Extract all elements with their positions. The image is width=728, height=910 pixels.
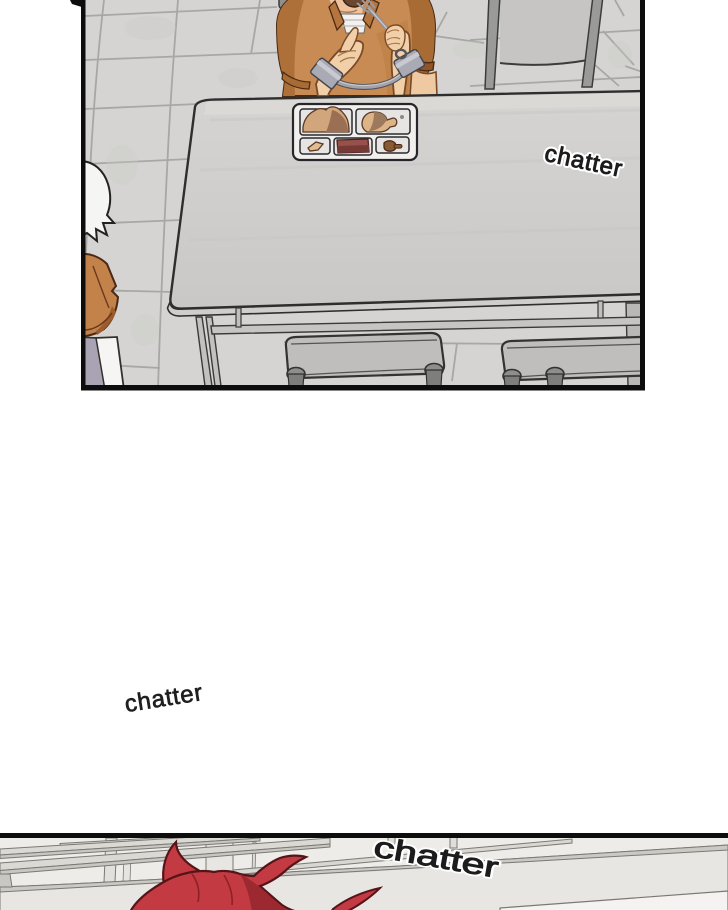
- svg-text:chatter: chatter: [123, 679, 205, 718]
